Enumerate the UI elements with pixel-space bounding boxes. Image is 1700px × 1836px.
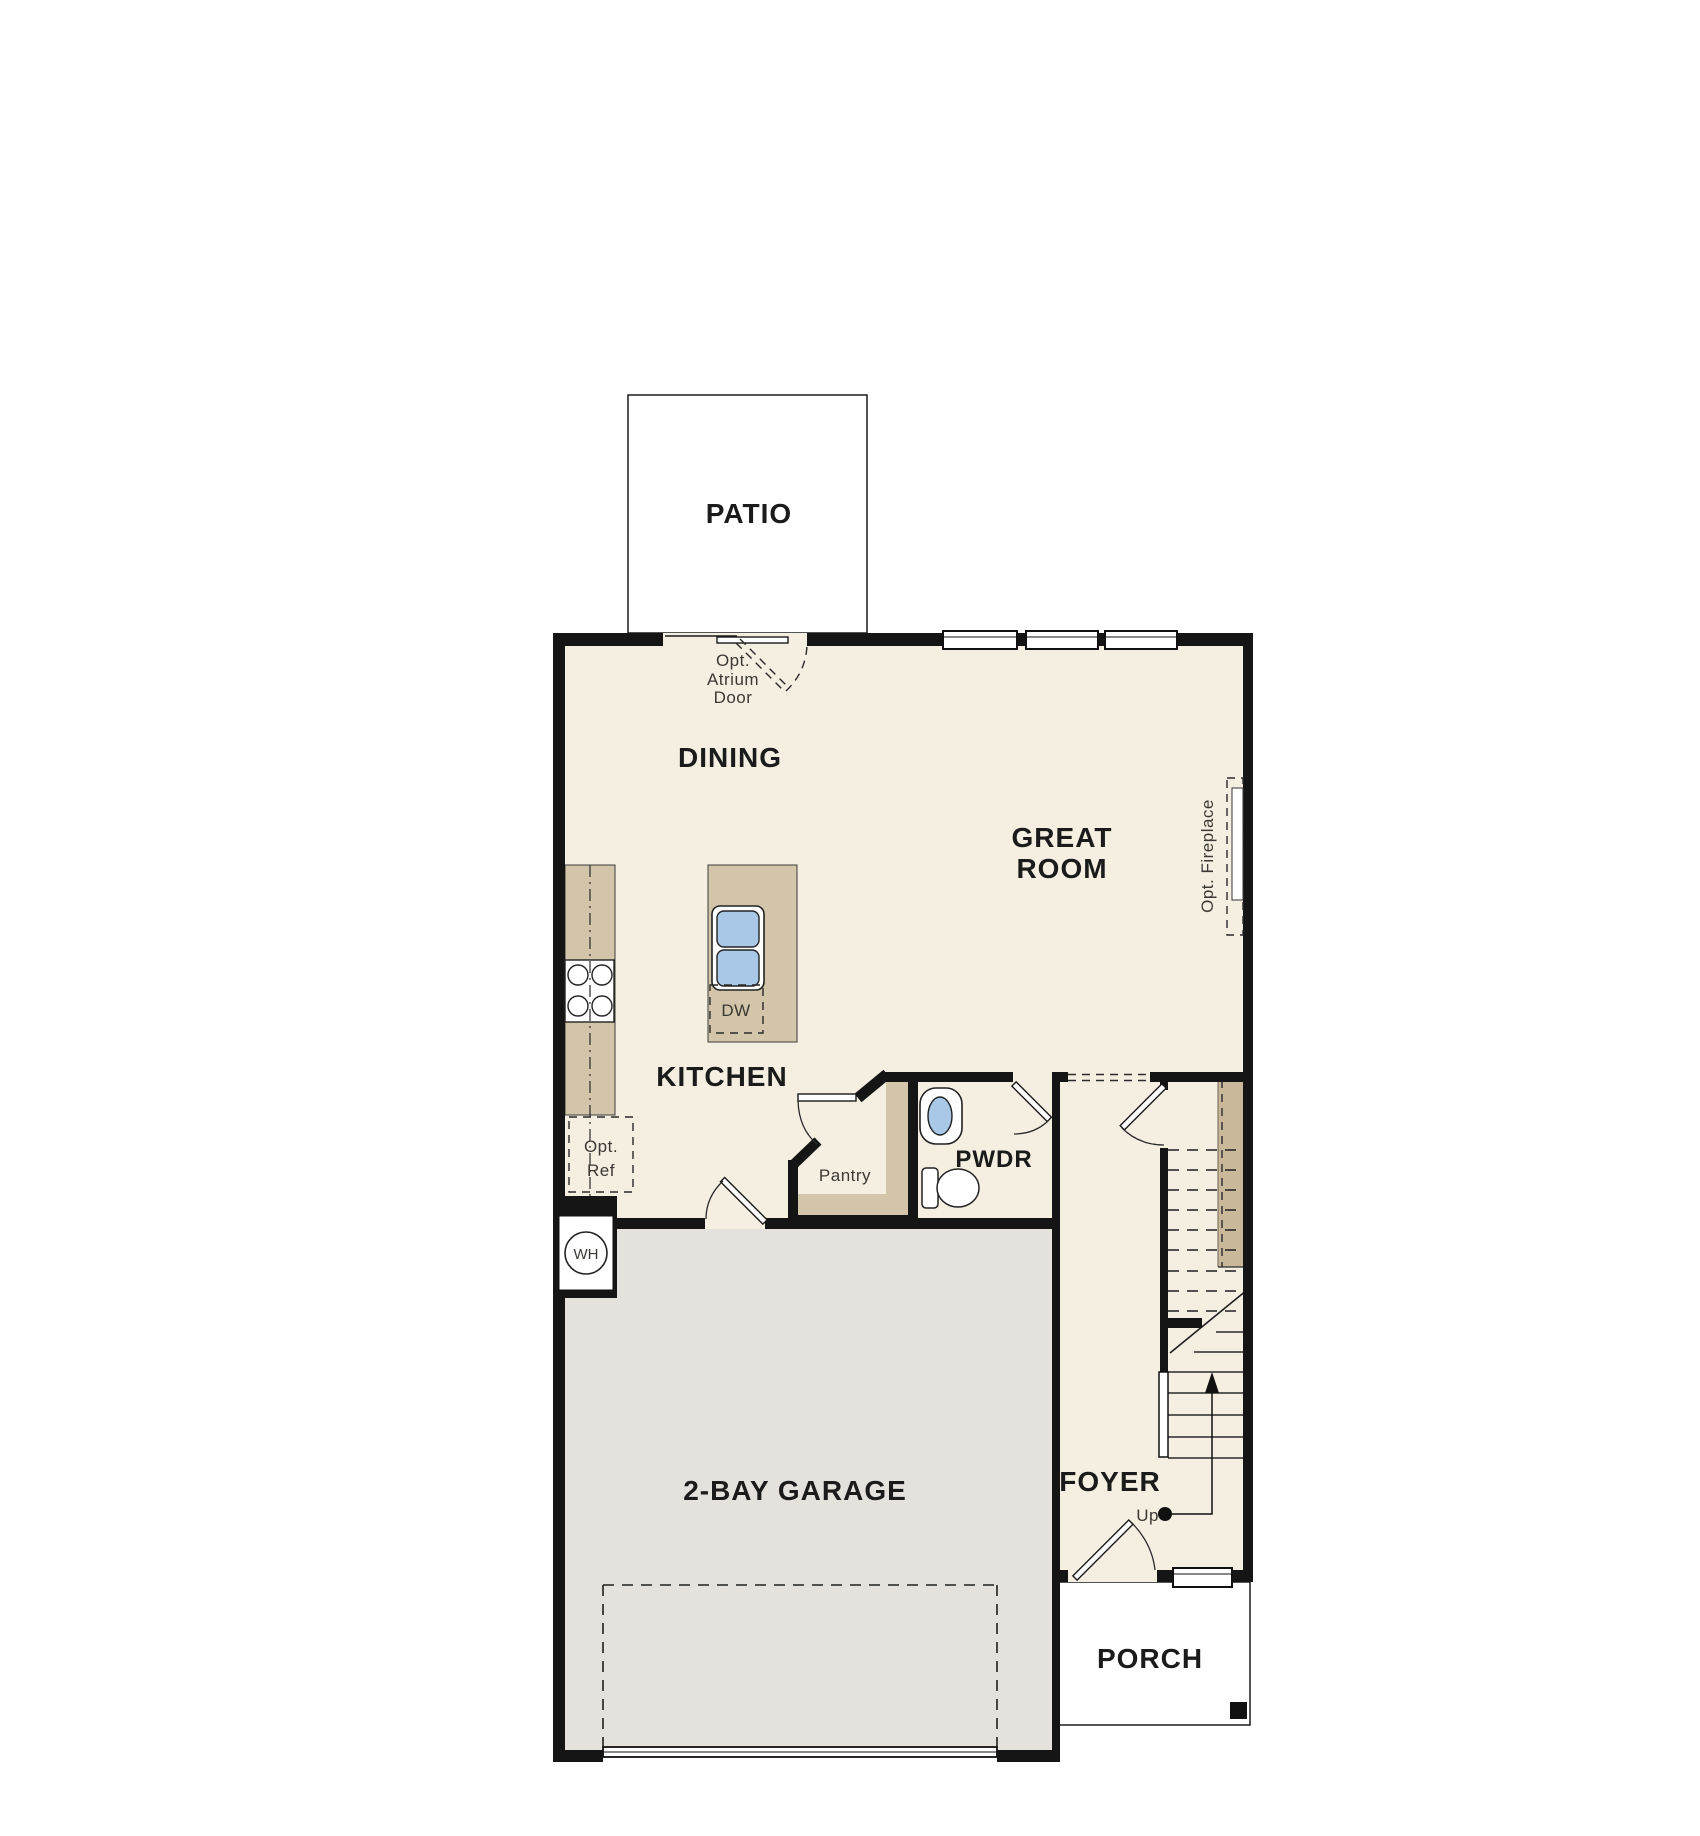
pwdr-label: PWDR	[955, 1146, 1032, 1173]
atrium-note-3: Door	[714, 688, 753, 707]
fireplace-label: Opt. Fireplace	[1198, 799, 1217, 913]
wall-greatroom-south-1	[882, 1072, 1013, 1082]
window	[943, 631, 1017, 649]
stair-handrail	[1159, 1372, 1168, 1457]
atrium-note-2: Atrium	[707, 670, 759, 689]
window	[1173, 1568, 1232, 1587]
window	[1105, 631, 1177, 649]
dining-label: DINING	[678, 742, 782, 773]
toilet	[922, 1168, 979, 1208]
pantry-shelf-band-bottom	[798, 1194, 908, 1215]
opt-ref-label-1: Opt.	[584, 1137, 618, 1156]
great-room-label-2: ROOM	[1016, 853, 1107, 884]
up-label: Up	[1136, 1506, 1159, 1525]
opt-ref-label-2: Ref	[587, 1161, 615, 1180]
great-room-label-1: GREAT	[1012, 822, 1113, 853]
pantry-label: Pantry	[819, 1166, 871, 1185]
water-heater-label: WH	[574, 1246, 599, 1263]
wall-stair-stub	[1168, 1318, 1202, 1328]
garage-label: 2-BAY GARAGE	[683, 1475, 907, 1506]
wall-stair-left	[1160, 1148, 1168, 1372]
patio-label: PATIO	[706, 498, 792, 529]
kitchen-label: KITCHEN	[656, 1061, 787, 1092]
pwdr-sink	[920, 1088, 962, 1144]
atrium-note-1: Opt.	[716, 651, 750, 670]
cased-opening	[1068, 1072, 1150, 1082]
island-sink	[712, 906, 764, 990]
porch-column	[1230, 1702, 1247, 1719]
wall-greatroom-south-3	[1150, 1072, 1247, 1082]
wall-pantry-east	[908, 1072, 918, 1228]
porch-label: PORCH	[1097, 1643, 1203, 1674]
dishwasher-label: DW	[721, 1001, 750, 1020]
water-heater: WH	[559, 1216, 613, 1290]
wall-right	[1243, 633, 1253, 1582]
garage-entry-opening	[705, 1218, 765, 1229]
wall-garage-foyer	[1052, 1072, 1060, 1762]
foyer-label: FOYER	[1059, 1466, 1160, 1497]
window	[1026, 631, 1098, 649]
wall-pantry-south	[788, 1215, 918, 1229]
wall-greatroom-south-2	[1052, 1072, 1068, 1082]
floorplan-drawing: Opt. Ref DW WH PATIO DINING	[0, 0, 1700, 1836]
floorplan-page: Opt. Ref DW WH PATIO DINING	[0, 0, 1700, 1836]
